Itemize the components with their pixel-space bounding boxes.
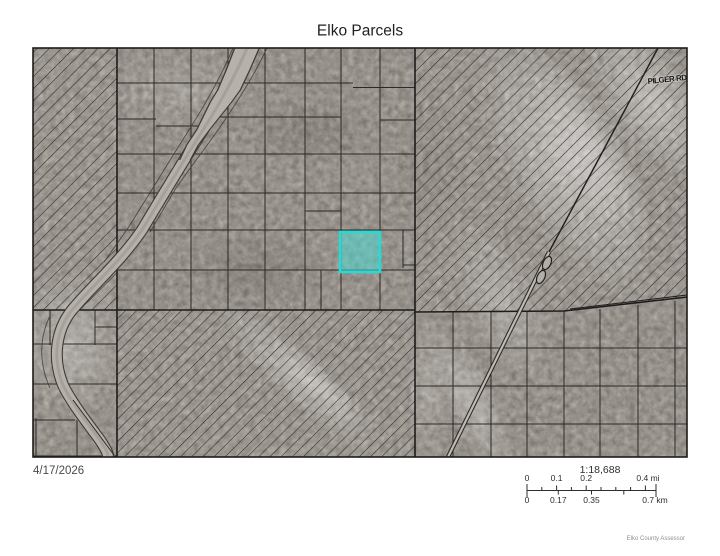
- svg-text:Elko Parcels: Elko Parcels: [317, 23, 403, 40]
- svg-text:4/17/2026: 4/17/2026: [33, 465, 84, 477]
- svg-text:0: 0: [525, 495, 530, 505]
- svg-text:0.4 mi: 0.4 mi: [636, 473, 659, 483]
- svg-text:0.2: 0.2: [580, 473, 592, 483]
- svg-text:0: 0: [525, 473, 530, 483]
- svg-text:0.17: 0.17: [550, 495, 567, 505]
- svg-text:0.1: 0.1: [551, 473, 563, 483]
- svg-text:Elko County Assessor: Elko County Assessor: [627, 536, 685, 542]
- svg-text:0.35: 0.35: [583, 495, 600, 505]
- svg-text:0.7 km: 0.7 km: [642, 495, 668, 505]
